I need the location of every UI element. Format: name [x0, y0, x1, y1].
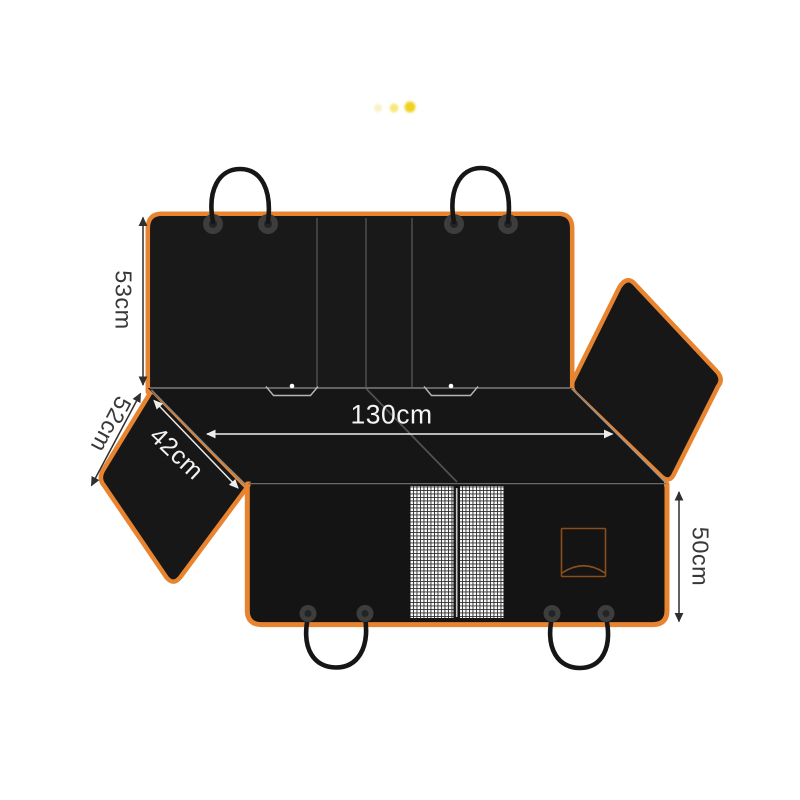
carousel-dot-1[interactable]	[374, 104, 382, 112]
buckle-slot-left-dot	[290, 384, 295, 389]
mesh-window-left	[411, 486, 454, 618]
mesh-window	[411, 486, 504, 618]
product-diagram-canvas: 53cm 52cm 42cm 130cm 50cm	[0, 0, 800, 800]
total-width-label: 130cm	[350, 400, 432, 430]
carousel-dot-2[interactable]	[390, 104, 399, 113]
product-image: 53cm 52cm 42cm 130cm 50cm	[0, 0, 800, 800]
mesh-window-right	[460, 486, 504, 618]
front-height-label: 50cm	[688, 527, 714, 586]
strap-anchor-hole	[362, 610, 369, 617]
strap-anchor-hole	[549, 610, 556, 617]
back-panel	[148, 214, 572, 392]
buckle-slot-right-dot	[449, 384, 454, 389]
carousel-dot-3[interactable]	[405, 102, 416, 113]
back-height-label: 53cm	[111, 270, 137, 329]
carousel-dots	[374, 102, 416, 113]
strap-anchor-hole	[305, 610, 312, 617]
strap-anchor-hole	[603, 610, 610, 617]
